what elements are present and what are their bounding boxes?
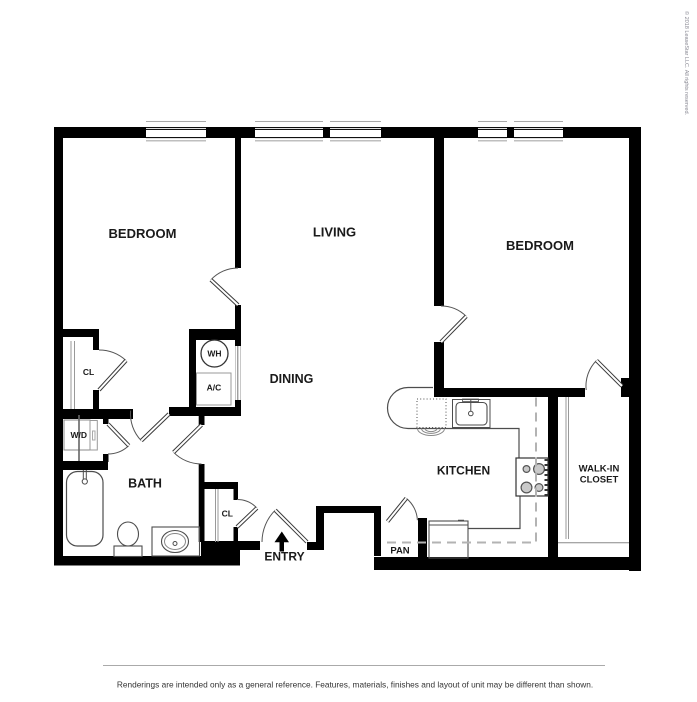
- svg-text:BATH: BATH: [128, 477, 162, 491]
- svg-text:LIVING: LIVING: [313, 225, 356, 240]
- svg-text:W/D: W/D: [71, 430, 88, 440]
- svg-text:WH: WH: [207, 349, 221, 359]
- svg-text:CL: CL: [83, 367, 94, 377]
- svg-text:KITCHEN: KITCHEN: [437, 464, 490, 478]
- svg-text:BEDROOM: BEDROOM: [506, 238, 574, 253]
- svg-text:CL: CL: [222, 508, 233, 518]
- svg-text:BEDROOM: BEDROOM: [109, 226, 177, 241]
- svg-text:DINING: DINING: [270, 372, 314, 386]
- svg-text:CLOSET: CLOSET: [580, 474, 619, 485]
- svg-text:ENTRY: ENTRY: [264, 550, 304, 564]
- svg-text:Renderings are intended only a: Renderings are intended only as a genera…: [117, 679, 593, 689]
- svg-text:PAN: PAN: [390, 546, 409, 557]
- svg-text:© 2018 LeaseStar LLC. All righ: © 2018 LeaseStar LLC. All rights reserve…: [683, 11, 690, 116]
- svg-text:WALK-IN: WALK-IN: [579, 464, 620, 475]
- svg-text:A/C: A/C: [207, 383, 222, 393]
